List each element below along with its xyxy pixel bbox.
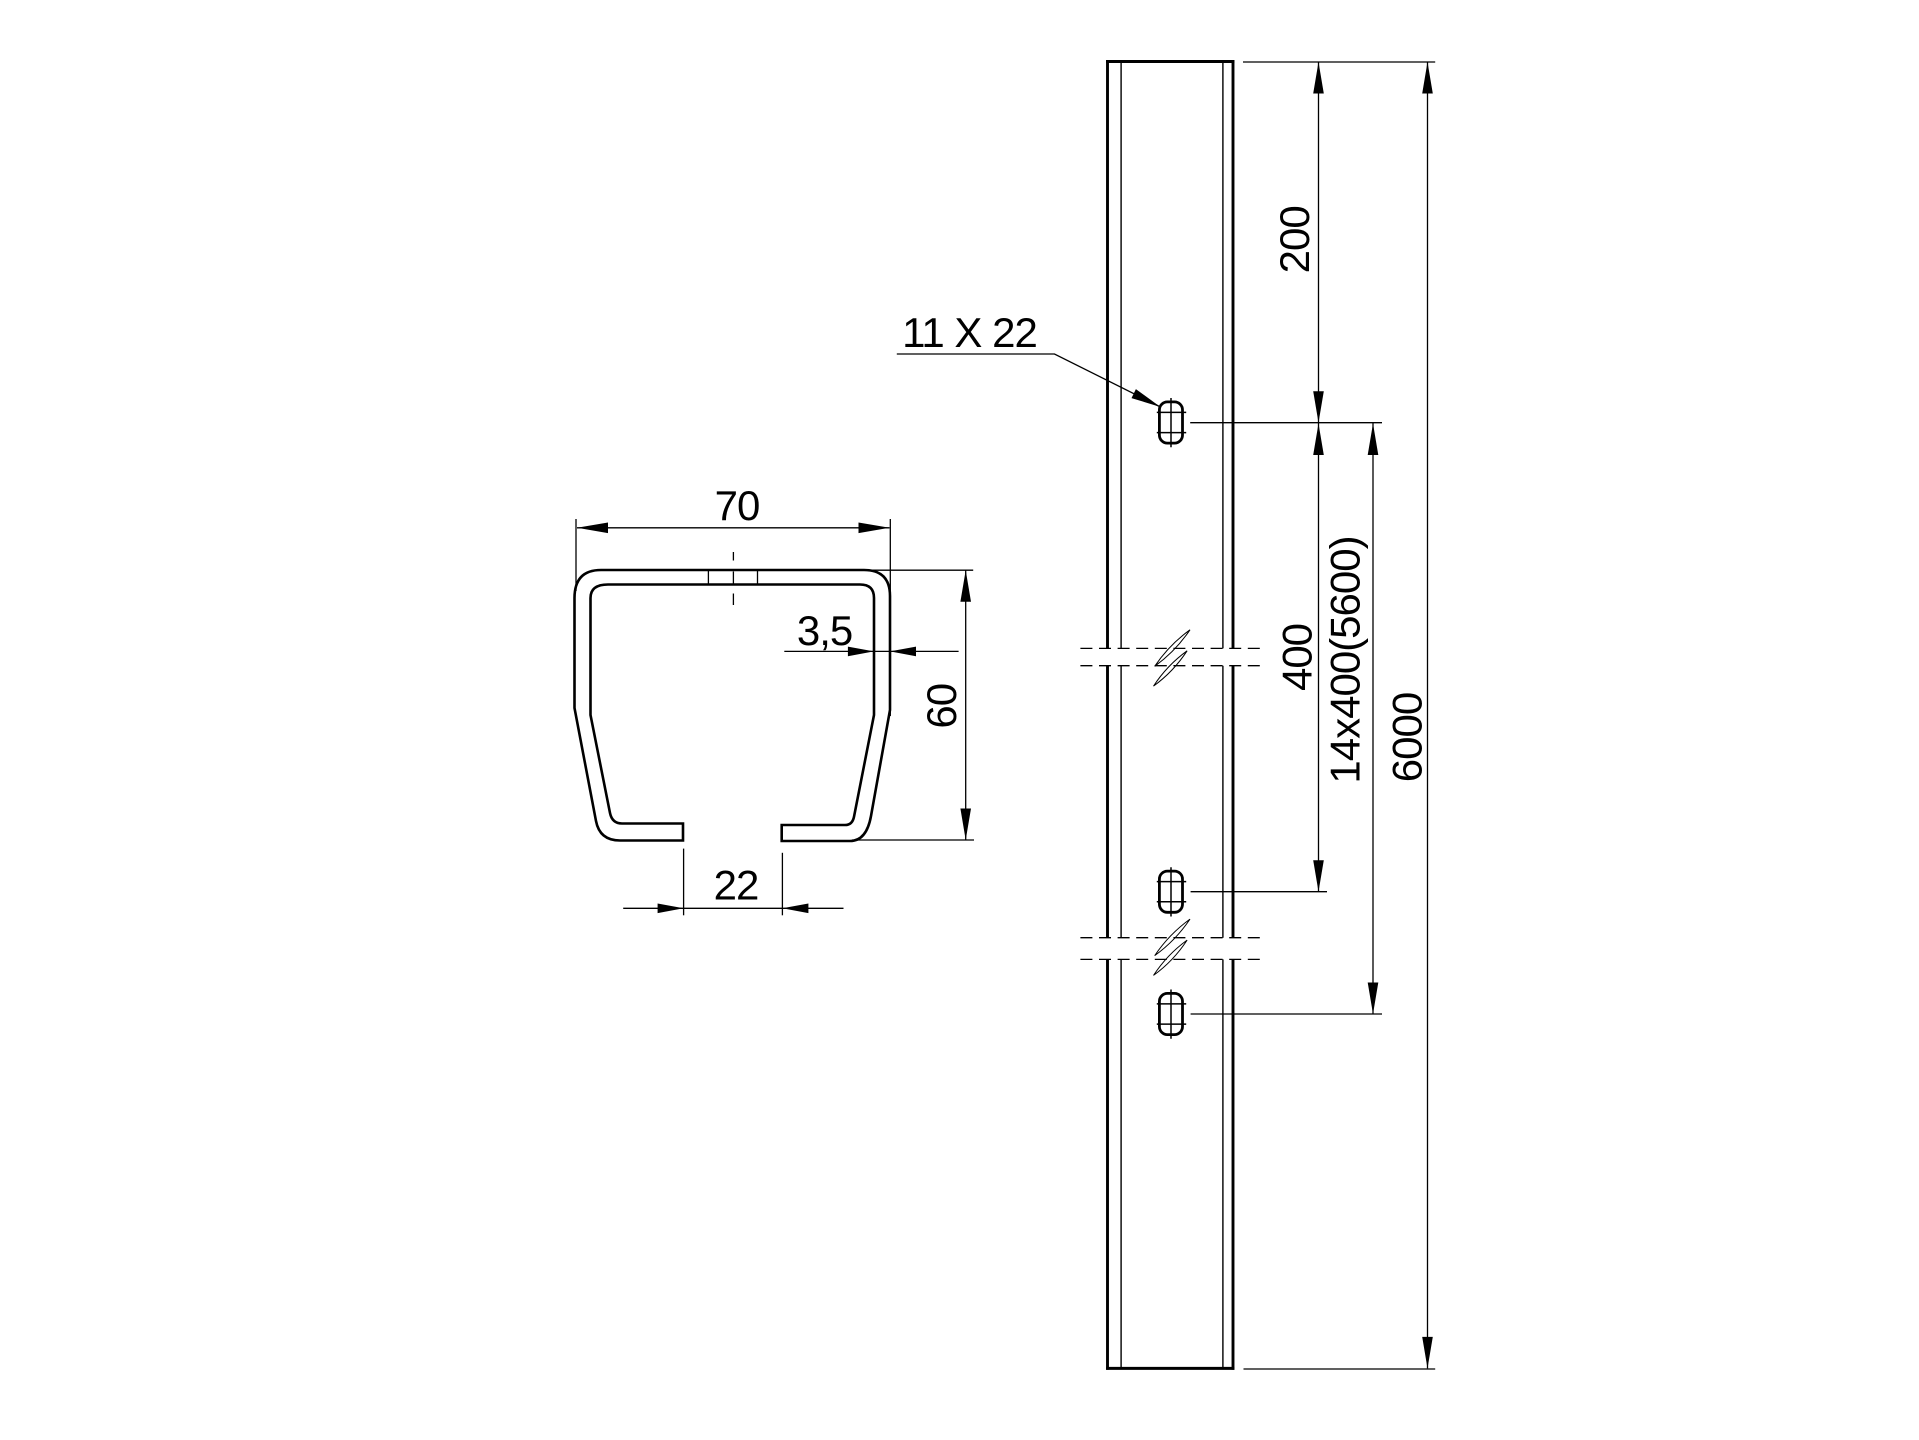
svg-text:11 X 22: 11 X 22 [902,309,1037,356]
svg-text:6000: 6000 [1384,693,1431,782]
svg-text:200: 200 [1271,206,1318,273]
svg-text:22: 22 [714,862,759,909]
svg-text:70: 70 [715,482,760,529]
svg-text:3,5: 3,5 [797,607,852,654]
svg-text:60: 60 [918,684,965,729]
svg-text:400: 400 [1274,624,1321,691]
svg-text:14x400(5600): 14x400(5600) [1322,536,1369,783]
